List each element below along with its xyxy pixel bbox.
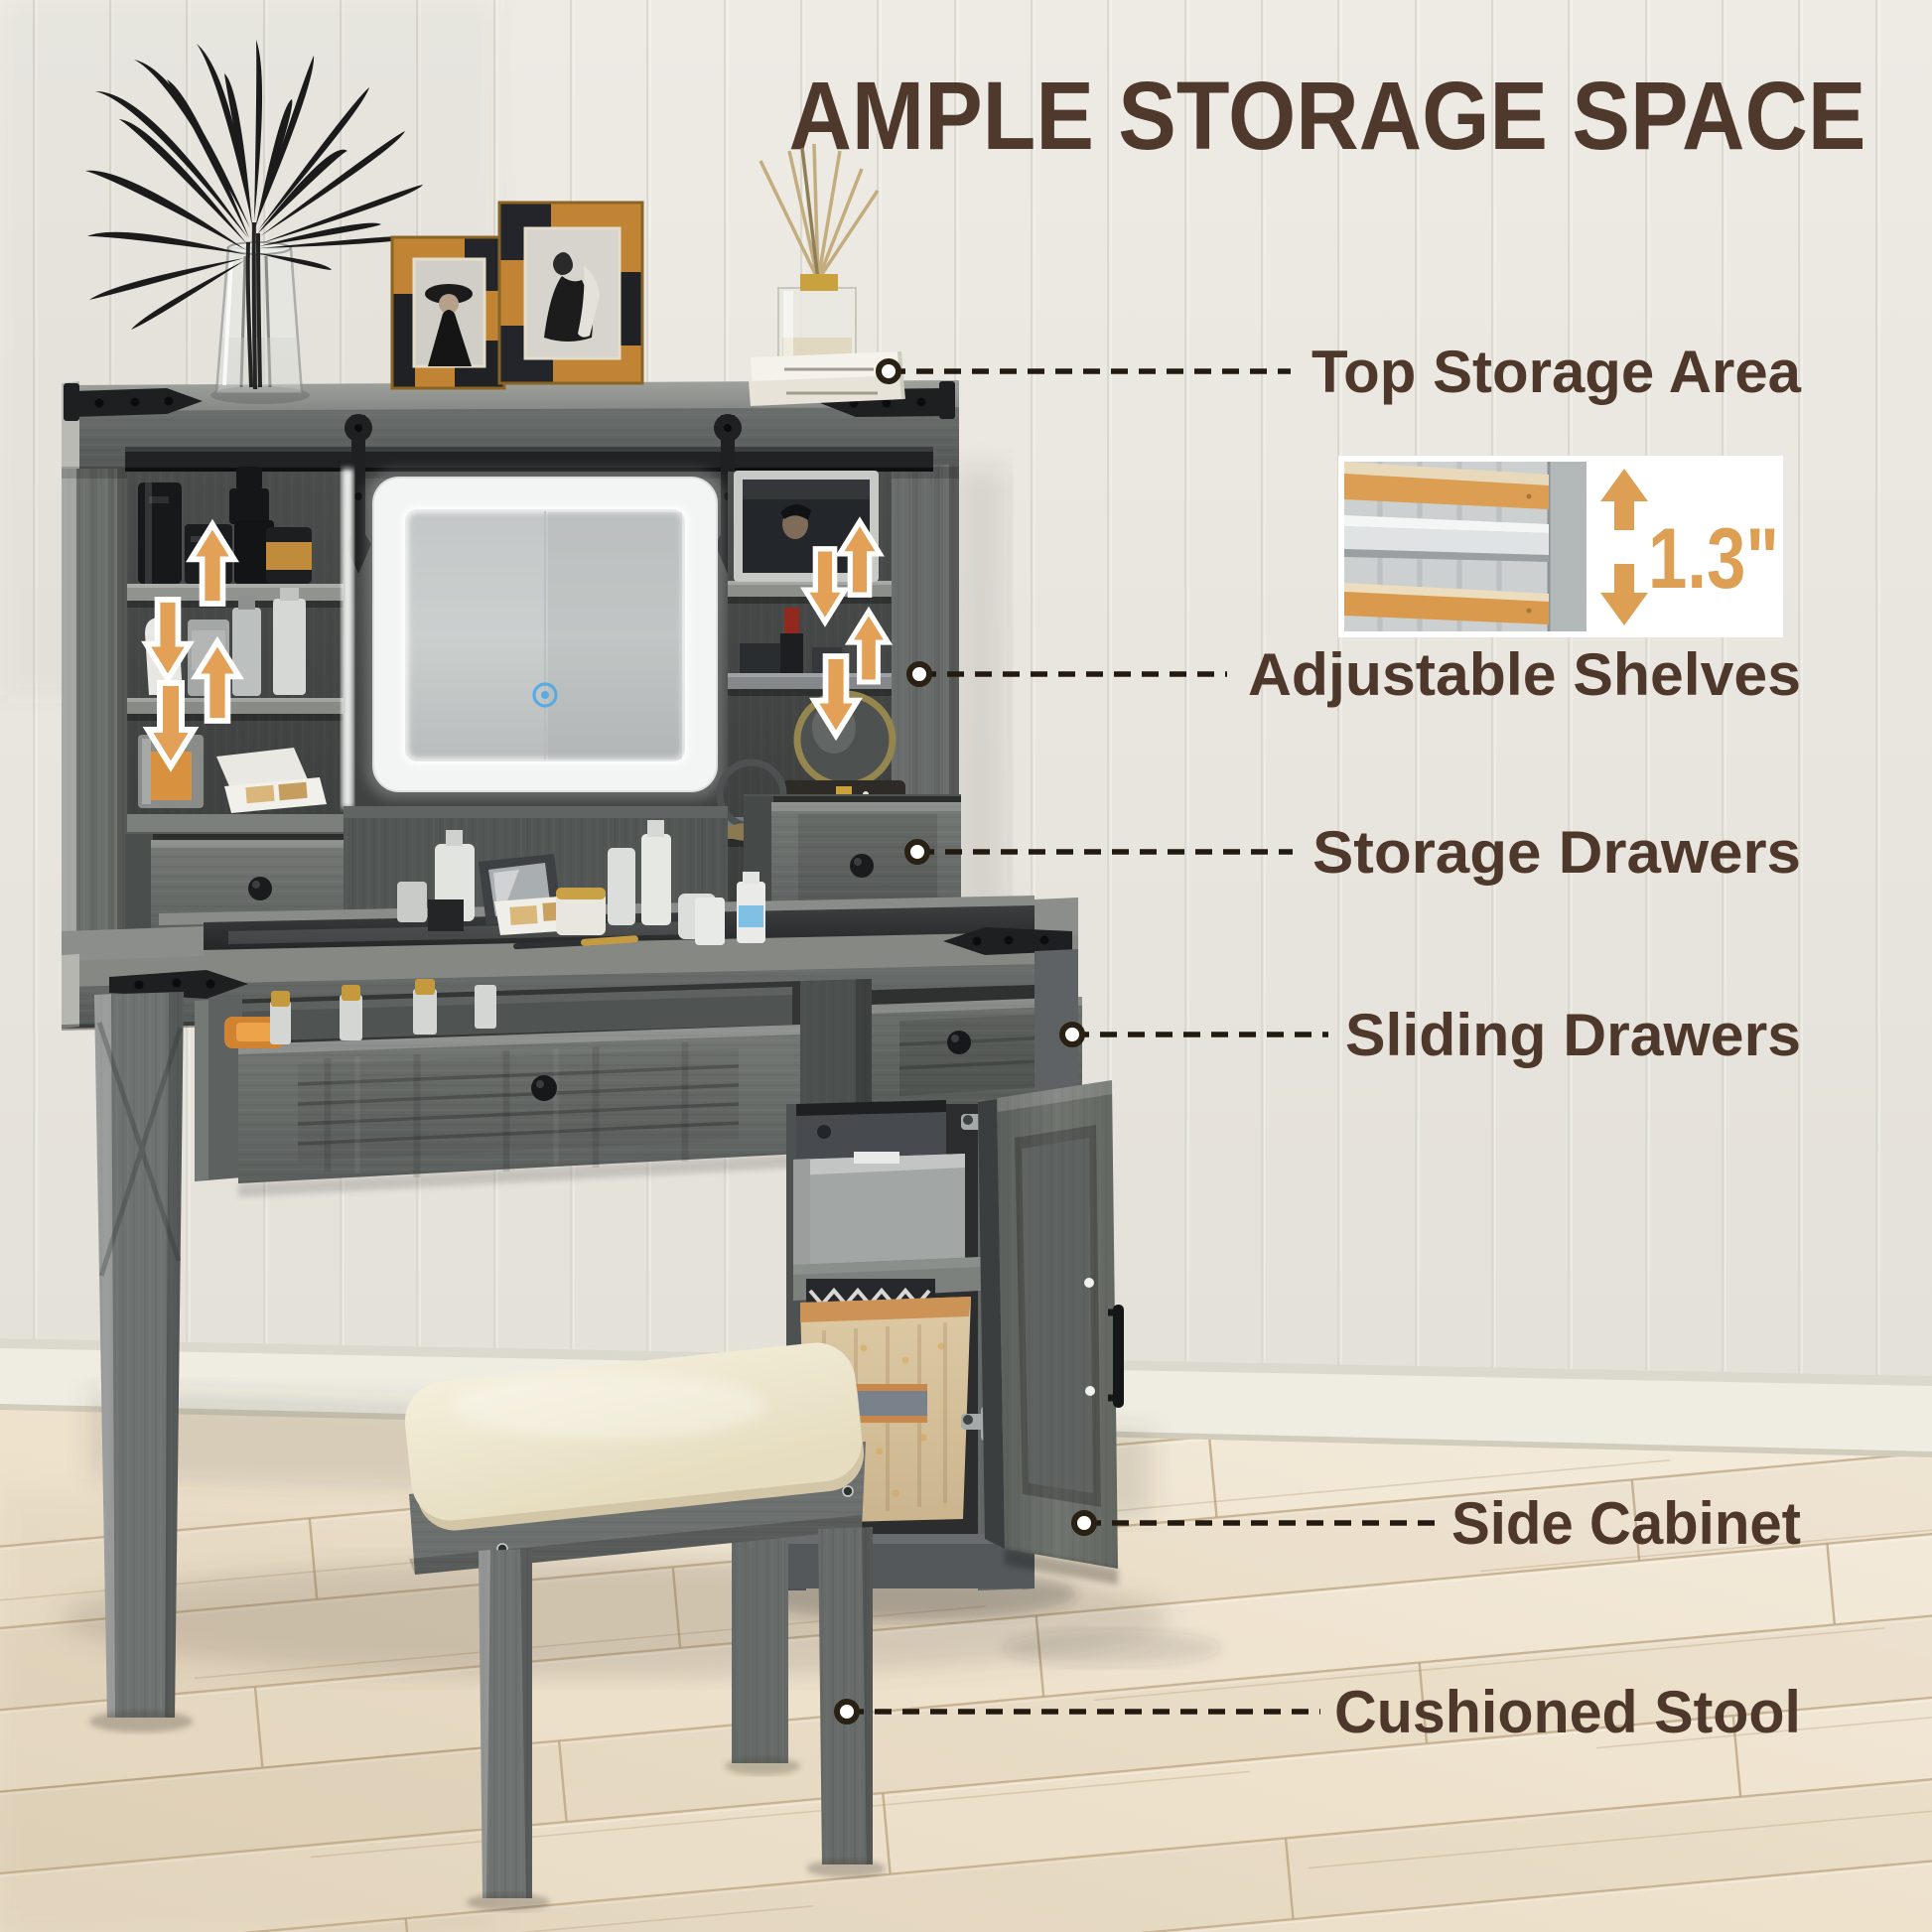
svg-text:Top Storage Area: Top Storage Area	[1311, 339, 1802, 405]
svg-text:1.3": 1.3"	[1648, 511, 1779, 607]
svg-text:Storage Drawers: Storage Drawers	[1312, 819, 1801, 886]
svg-text:Cushioned Stool: Cushioned Stool	[1334, 1679, 1801, 1745]
svg-text:AMPLE STORAGE SPACE: AMPLE STORAGE SPACE	[789, 62, 1866, 170]
svg-text:Side Cabinet: Side Cabinet	[1451, 1490, 1801, 1557]
svg-text:Sliding Drawers: Sliding Drawers	[1345, 1002, 1801, 1068]
svg-text:Adjustable Shelves: Adjustable Shelves	[1248, 641, 1801, 708]
